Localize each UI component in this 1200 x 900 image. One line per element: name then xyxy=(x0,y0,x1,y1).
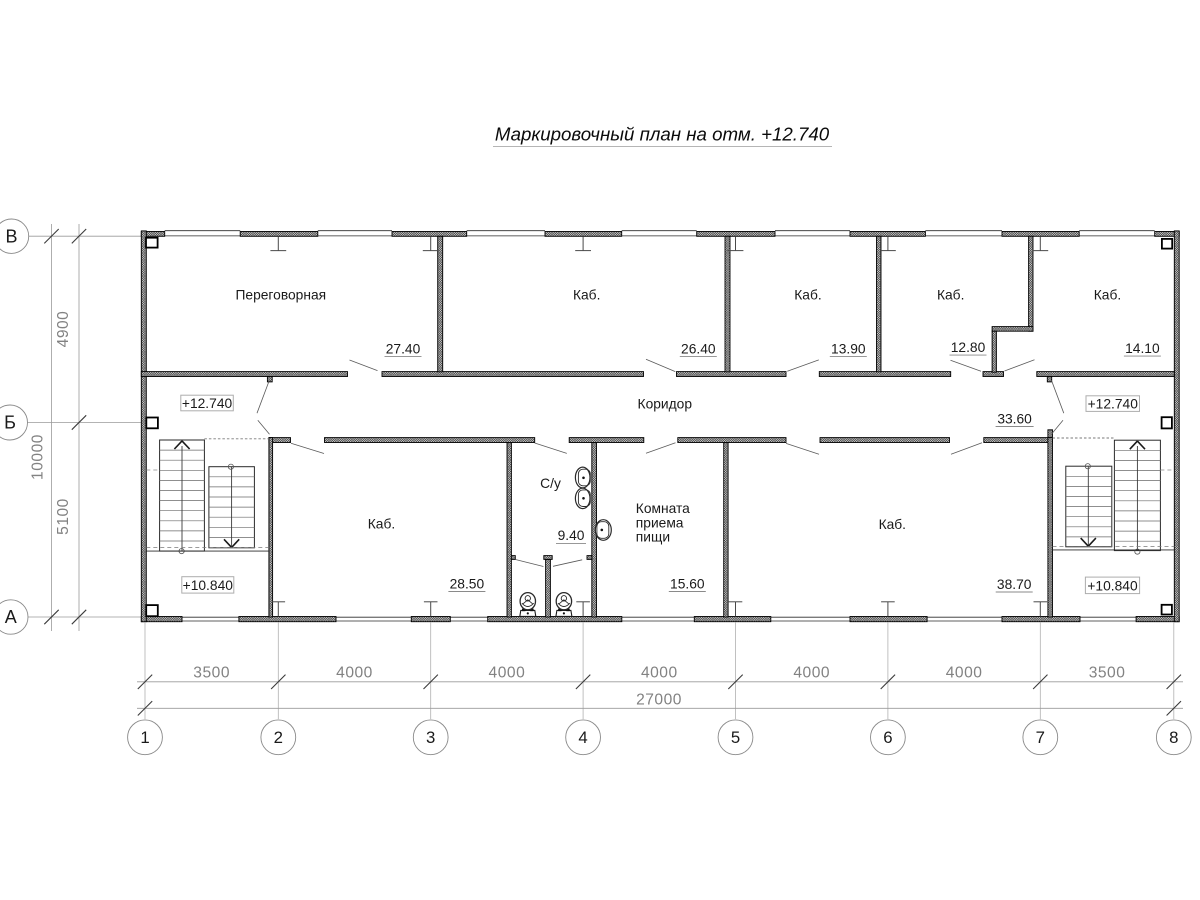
svg-text:4000: 4000 xyxy=(336,665,373,682)
svg-text:4: 4 xyxy=(578,728,587,747)
svg-text:3: 3 xyxy=(426,728,435,747)
svg-text:+12.740: +12.740 xyxy=(182,396,233,411)
svg-text:+10.840: +10.840 xyxy=(1087,578,1138,593)
svg-text:1: 1 xyxy=(140,728,149,747)
svg-text:приема: приема xyxy=(636,515,684,530)
svg-text:13.90: 13.90 xyxy=(831,341,866,356)
svg-text:Маркировочный план на отм. +12: Маркировочный план на отм. +12.740 xyxy=(495,124,830,145)
svg-text:4000: 4000 xyxy=(641,665,678,682)
svg-text:27.40: 27.40 xyxy=(386,341,421,356)
svg-text:+12.740: +12.740 xyxy=(1088,397,1139,412)
svg-text:Каб.: Каб. xyxy=(1094,287,1121,302)
svg-text:Каб.: Каб. xyxy=(573,287,600,302)
svg-text:26.40: 26.40 xyxy=(681,341,716,356)
svg-text:27000: 27000 xyxy=(636,692,682,709)
svg-text:5: 5 xyxy=(731,728,740,747)
svg-text:Каб.: Каб. xyxy=(368,517,395,532)
svg-text:15.60: 15.60 xyxy=(670,576,705,591)
svg-text:8: 8 xyxy=(1169,728,1178,747)
svg-text:Переговорная: Переговорная xyxy=(235,287,326,302)
svg-text:Каб.: Каб. xyxy=(937,287,964,302)
svg-text:5100: 5100 xyxy=(55,498,72,535)
svg-text:4000: 4000 xyxy=(793,665,830,682)
svg-text:7: 7 xyxy=(1036,728,1045,747)
svg-text:+10.840: +10.840 xyxy=(183,578,234,593)
svg-text:Коридор: Коридор xyxy=(638,396,693,411)
svg-text:12.80: 12.80 xyxy=(951,340,986,355)
svg-text:Комната: Комната xyxy=(636,501,690,516)
svg-text:А: А xyxy=(5,607,17,627)
svg-text:4000: 4000 xyxy=(489,665,526,682)
svg-text:38.70: 38.70 xyxy=(997,577,1032,592)
svg-text:Каб.: Каб. xyxy=(794,287,821,302)
svg-text:2: 2 xyxy=(274,728,283,747)
svg-text:пищи: пищи xyxy=(636,530,670,545)
svg-text:Каб.: Каб. xyxy=(879,517,906,532)
svg-text:4900: 4900 xyxy=(55,311,72,348)
svg-text:6: 6 xyxy=(883,728,892,747)
svg-text:3500: 3500 xyxy=(193,665,230,682)
svg-text:4000: 4000 xyxy=(946,665,983,682)
svg-text:Б: Б xyxy=(4,413,16,433)
svg-text:10000: 10000 xyxy=(30,434,47,480)
svg-text:С/у: С/у xyxy=(540,476,561,491)
svg-text:9.40: 9.40 xyxy=(558,528,585,543)
svg-text:14.10: 14.10 xyxy=(1125,341,1160,356)
svg-text:33.60: 33.60 xyxy=(997,411,1032,426)
svg-text:В: В xyxy=(5,226,17,246)
svg-text:28.50: 28.50 xyxy=(450,576,485,591)
svg-text:3500: 3500 xyxy=(1089,665,1126,682)
